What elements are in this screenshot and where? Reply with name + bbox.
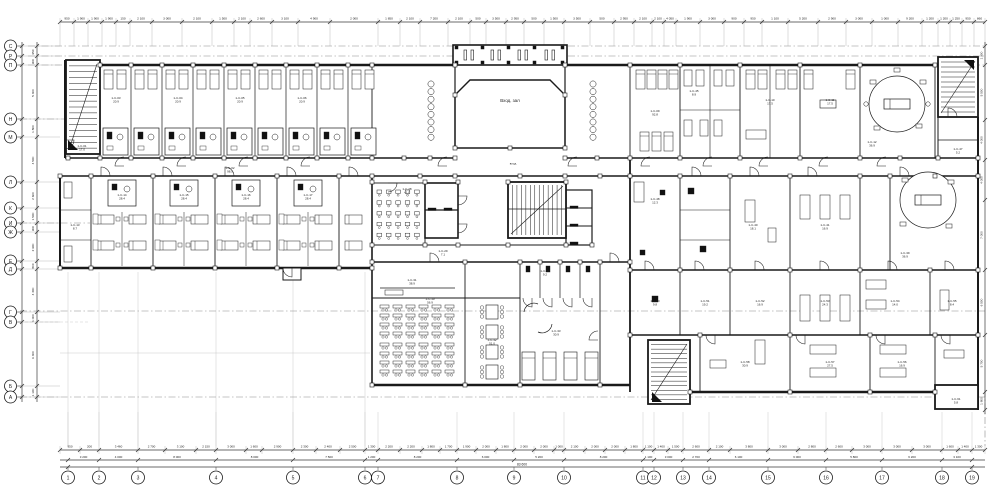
room-area: 17.0 [79, 148, 85, 152]
door-swing [543, 298, 552, 307]
column-marker [798, 63, 802, 67]
column-marker [936, 156, 940, 160]
sanitary-pod [351, 128, 376, 155]
column-marker [788, 268, 792, 272]
desk [432, 314, 441, 317]
column-marker [678, 174, 682, 178]
axis-number: 8 [456, 476, 459, 482]
toilet [200, 132, 205, 139]
chair-dot [437, 327, 439, 329]
bench [684, 70, 692, 86]
toilet [262, 132, 267, 139]
dim-value: 2 100 [238, 17, 246, 21]
bed [253, 241, 270, 250]
bed [197, 70, 206, 89]
wardrobe [217, 214, 222, 224]
axis-number: 18 [939, 476, 945, 482]
dim-value: 3 000 [855, 17, 863, 21]
chair-dot [385, 365, 387, 367]
dim-value: 2 100 [716, 445, 724, 449]
op-equipment [902, 178, 908, 182]
vestibule-door-leaf [464, 50, 467, 60]
door-swing [458, 196, 467, 205]
chair-dot [385, 327, 387, 329]
column-marker [858, 268, 862, 272]
axis-letter: Л [9, 180, 12, 186]
chair-dot [480, 315, 484, 319]
desk [406, 343, 415, 346]
wardrobe [93, 214, 98, 224]
chair-dot [424, 365, 426, 367]
dim-value: 2 100 [571, 445, 579, 449]
sink [241, 134, 247, 140]
column-marker [337, 266, 341, 270]
column-marker [858, 156, 862, 160]
chair-leg [407, 227, 409, 229]
desk [445, 370, 454, 373]
column-marker [213, 266, 217, 270]
dim-value: 1 500 [672, 445, 680, 449]
dim-value: 950 [64, 17, 69, 21]
column-marker [98, 63, 102, 67]
column-marker [151, 266, 155, 270]
column-marker [628, 333, 632, 337]
vestibule-column [561, 46, 564, 49]
dim-value: 2 000 [611, 445, 619, 449]
chair-dot [437, 336, 439, 338]
chair-dot [408, 318, 410, 320]
column-marker [129, 63, 133, 67]
wardrobe [217, 240, 222, 250]
desk [406, 314, 415, 317]
dim-value: 2 500 [349, 445, 357, 449]
chair [396, 201, 401, 204]
chair-dot [447, 336, 449, 338]
column-marker [370, 156, 374, 160]
chair-dot [434, 336, 436, 338]
room-area: 28.4 [243, 197, 249, 201]
chair-leg [416, 194, 418, 196]
door-swing [458, 224, 467, 233]
dim-value: 3 000 [923, 445, 931, 449]
column-marker [508, 146, 512, 150]
column-marker [858, 174, 862, 178]
dim-value: 150 [120, 17, 125, 21]
dim-value: 1 900 [684, 17, 692, 21]
column-marker [976, 333, 980, 337]
toilet [112, 184, 117, 190]
dim-value: 1 250 [952, 17, 960, 21]
desk [385, 290, 403, 295]
op-equipment [916, 124, 922, 128]
column-marker [453, 146, 457, 150]
chair-leg [416, 227, 418, 229]
nightstand [248, 243, 252, 247]
cabinet [634, 182, 644, 202]
chair-dot [395, 356, 397, 358]
chair-dot [480, 366, 484, 370]
dim-value: 2 600 [835, 445, 843, 449]
column-marker [253, 63, 257, 67]
dim-value: 500 [599, 17, 604, 21]
chair [405, 233, 410, 236]
chair-dot [408, 356, 410, 358]
chair-dot [411, 356, 413, 358]
couch [866, 300, 886, 309]
room-area: 51.0 [489, 342, 495, 346]
chair-dot [480, 370, 484, 374]
chair-leg [388, 227, 390, 229]
couch [585, 352, 598, 380]
dim-value: 2 000 [482, 445, 490, 449]
chair-leg [397, 216, 399, 218]
room-area: 17.5 [827, 102, 833, 106]
chair [415, 190, 420, 193]
chair-dot [385, 347, 387, 349]
chair-dot [382, 356, 384, 358]
dim-value: 1 900 [463, 445, 471, 449]
stacked-chair [590, 134, 596, 140]
wardrobe [93, 240, 98, 250]
chair [415, 201, 420, 204]
chair-leg [388, 194, 390, 196]
sink [169, 146, 175, 150]
dim-value: 4 050 [666, 17, 674, 21]
chair-dot [424, 336, 426, 338]
door-swing [695, 261, 704, 270]
dim-value: 2 000 [520, 445, 528, 449]
dim-value: 950 [31, 49, 35, 54]
bed [352, 70, 361, 89]
nightstand [240, 243, 244, 247]
dimension-strip-left: 9509005 4001 8004 5002 6001 5009002 9008… [18, 42, 60, 402]
dim-value: 1 200 [368, 455, 376, 459]
chair-dot [437, 365, 439, 367]
vestibule-column [507, 46, 510, 49]
chair-dot [411, 374, 413, 376]
room-area: 20.9 [175, 100, 181, 104]
sink [148, 134, 154, 140]
axis-number: 17 [879, 476, 885, 482]
dim-value: 1 800 [501, 445, 509, 449]
bed [636, 70, 645, 89]
desk [380, 343, 389, 346]
dim-value: 7 500 [325, 455, 333, 459]
axis-letter: Г [9, 310, 12, 316]
column-marker [858, 63, 862, 67]
door-swing [876, 335, 885, 344]
table [710, 360, 726, 368]
dim-value: 500 [475, 17, 480, 21]
op-equipment [870, 80, 876, 84]
door-swing [945, 261, 954, 270]
chair-dot [421, 318, 423, 320]
column-marker [213, 174, 217, 178]
elevator-door-mark [570, 224, 578, 227]
bed [191, 215, 208, 224]
couch [840, 195, 850, 219]
desk [432, 352, 441, 355]
dim-value: 2 400 [324, 445, 332, 449]
column-marker [976, 156, 980, 160]
chair-dot [382, 327, 384, 329]
dim-value: 5 200 [535, 455, 543, 459]
column-marker [558, 260, 562, 264]
op-equipment [948, 180, 954, 184]
sink [124, 186, 130, 192]
column-marker [678, 156, 682, 160]
column-marker [506, 243, 510, 247]
bed [117, 70, 126, 89]
column-marker [563, 93, 567, 97]
column-marker [598, 383, 602, 387]
door-swing [563, 298, 572, 307]
nightstand [310, 243, 314, 247]
elevator-door-mark [570, 206, 578, 209]
toilet [169, 132, 174, 139]
dim-value: 900 [31, 59, 35, 64]
dim-value: 1 900 [91, 17, 99, 21]
bed [159, 215, 176, 224]
dim-value: 1 850 [385, 17, 393, 21]
bed [746, 70, 755, 89]
column-marker [564, 243, 568, 247]
couch [745, 200, 755, 222]
dim-value: 6 400 [31, 351, 35, 359]
stacked-chair [590, 111, 596, 117]
dim-value: 950 [750, 17, 755, 21]
chair-leg [407, 216, 409, 218]
sanitary-pod [134, 128, 159, 155]
sink [179, 134, 185, 140]
equip-dark [660, 190, 665, 195]
bench [700, 120, 708, 136]
chair-dot [500, 310, 504, 314]
sink [262, 146, 268, 150]
dim-value: 1 100 [645, 445, 653, 449]
sink [293, 146, 299, 150]
axis-number: 16 [823, 476, 829, 482]
chair-dot [424, 318, 426, 320]
door-swing [287, 167, 296, 176]
chair-dot [382, 365, 384, 367]
op-equipment [900, 222, 906, 226]
bed [241, 70, 250, 89]
column-marker [453, 63, 457, 67]
dim-value: 2 100 [654, 17, 662, 21]
room-area: 36.9 [902, 255, 908, 259]
column-marker [370, 260, 374, 264]
door-swing [820, 261, 829, 270]
couch [880, 368, 906, 377]
chair-leg [397, 194, 399, 196]
bed [228, 70, 237, 89]
column-marker [463, 383, 467, 387]
chair-dot [398, 365, 400, 367]
vestibule-door-leaf [498, 50, 501, 60]
desk [419, 361, 428, 364]
door-swing [589, 331, 598, 340]
room-area: 20.9 [113, 100, 119, 104]
chair-dot [450, 327, 452, 329]
door-swing [808, 167, 817, 176]
chair-dot [437, 356, 439, 358]
bench [684, 120, 692, 136]
desk [393, 323, 402, 326]
sink [138, 146, 144, 150]
chair-dot [447, 374, 449, 376]
axis-number: 2 [98, 476, 101, 482]
bed [345, 241, 362, 250]
floor-plan-viewport: 9501 9001 9001 9001502 1003 0002 1001 50… [0, 0, 1000, 492]
desk [432, 370, 441, 373]
bed [210, 70, 219, 89]
chair [396, 222, 401, 225]
stacked-chair [590, 127, 596, 133]
column-marker [315, 156, 319, 160]
vestibule-door-leaf [552, 50, 555, 60]
couch [564, 352, 577, 380]
chair-dot [421, 374, 423, 376]
chair-dot [480, 310, 484, 314]
dim-value: 1 000 [555, 445, 563, 449]
dim-value: 1 500 [219, 17, 227, 21]
door-swing [888, 261, 897, 270]
chair-dot [500, 366, 504, 370]
bed [135, 70, 144, 89]
dim-value: 4 000 [980, 136, 984, 144]
chair-dot [437, 309, 439, 311]
column-marker [563, 146, 567, 150]
column-marker [453, 174, 457, 178]
dim-value: 1 900 [980, 51, 984, 59]
axis-number: 11 [640, 476, 645, 482]
toilet [138, 132, 143, 139]
chair-dot [434, 347, 436, 349]
column-marker [453, 93, 457, 97]
chair-leg [397, 205, 399, 207]
chair-dot [408, 327, 410, 329]
dim-value: 2 600 [692, 445, 700, 449]
room-area: 30.9 [742, 364, 748, 368]
table [486, 345, 498, 359]
column-marker [58, 174, 62, 178]
chair-dot [395, 336, 397, 338]
axis-letter: М [8, 135, 12, 141]
desk [406, 323, 415, 326]
column-marker [898, 156, 902, 160]
column-marker [598, 260, 602, 264]
chair-dot [434, 309, 436, 311]
table [486, 305, 498, 319]
desk [419, 332, 428, 335]
room-area: 5.8 [954, 401, 959, 405]
dim-value: 950 [965, 17, 970, 21]
chair-dot [382, 347, 384, 349]
chair-dot [447, 318, 449, 320]
chair-leg [388, 216, 390, 218]
op-equipment [946, 224, 952, 228]
chair [405, 201, 410, 204]
column-marker [463, 260, 467, 264]
chair-dot [411, 327, 413, 329]
toilet [107, 132, 112, 139]
dim-value: 3 500 [492, 17, 500, 21]
desk [393, 332, 402, 335]
desk [419, 305, 428, 308]
desk [380, 370, 389, 373]
dim-value: 1 800 [427, 445, 435, 449]
room-area: 27.5 [827, 364, 833, 368]
bed [283, 241, 300, 250]
chair-dot [424, 309, 426, 311]
dim-value: 500 [531, 17, 536, 21]
desk [393, 305, 402, 308]
plan-circle [864, 102, 868, 106]
door-swing [796, 335, 805, 344]
axis-number: 7 [377, 476, 380, 482]
table [486, 325, 498, 339]
axis-number: 5 [292, 476, 295, 482]
dim-value: 4 000 [115, 455, 123, 459]
column-marker [370, 63, 374, 67]
bed [664, 132, 673, 151]
dim-value: 900 [31, 226, 35, 231]
dim-value: 9 200 [906, 17, 914, 21]
door-swing [750, 167, 759, 176]
bed [179, 70, 188, 89]
chair [386, 222, 391, 225]
room-area: 28.4 [305, 197, 311, 201]
room-area: 30.9 [553, 333, 559, 337]
bed [97, 241, 114, 250]
equip-dark [700, 246, 706, 252]
column-marker [788, 333, 792, 337]
desk [432, 343, 441, 346]
nightstand [124, 243, 128, 247]
bed [776, 70, 785, 89]
door-swing [523, 298, 532, 307]
dim-value: 2 900 [31, 243, 35, 251]
chair [405, 222, 410, 225]
column-marker [89, 174, 93, 178]
bed [669, 70, 678, 89]
desk [445, 305, 454, 308]
chair-dot [395, 365, 397, 367]
chair-dot [408, 365, 410, 367]
column-marker [868, 390, 872, 394]
column-marker [628, 268, 632, 272]
chair-dot [421, 365, 423, 367]
elevator-door-mark [428, 208, 436, 211]
sink [334, 134, 340, 140]
stacked-chair [590, 81, 596, 87]
desk [393, 361, 402, 364]
desk [406, 305, 415, 308]
desk [393, 343, 402, 346]
sink [303, 134, 309, 140]
desk [432, 305, 441, 308]
stacked-chair [428, 89, 434, 95]
chair-dot [447, 327, 449, 329]
dim-value: 1 800 [31, 125, 35, 133]
chair-dot [450, 318, 452, 320]
column-marker [222, 156, 226, 160]
chair-leg [397, 237, 399, 239]
vestibule-column [455, 46, 458, 49]
nightstand [178, 243, 182, 247]
dim-value: 3 000 [227, 445, 235, 449]
